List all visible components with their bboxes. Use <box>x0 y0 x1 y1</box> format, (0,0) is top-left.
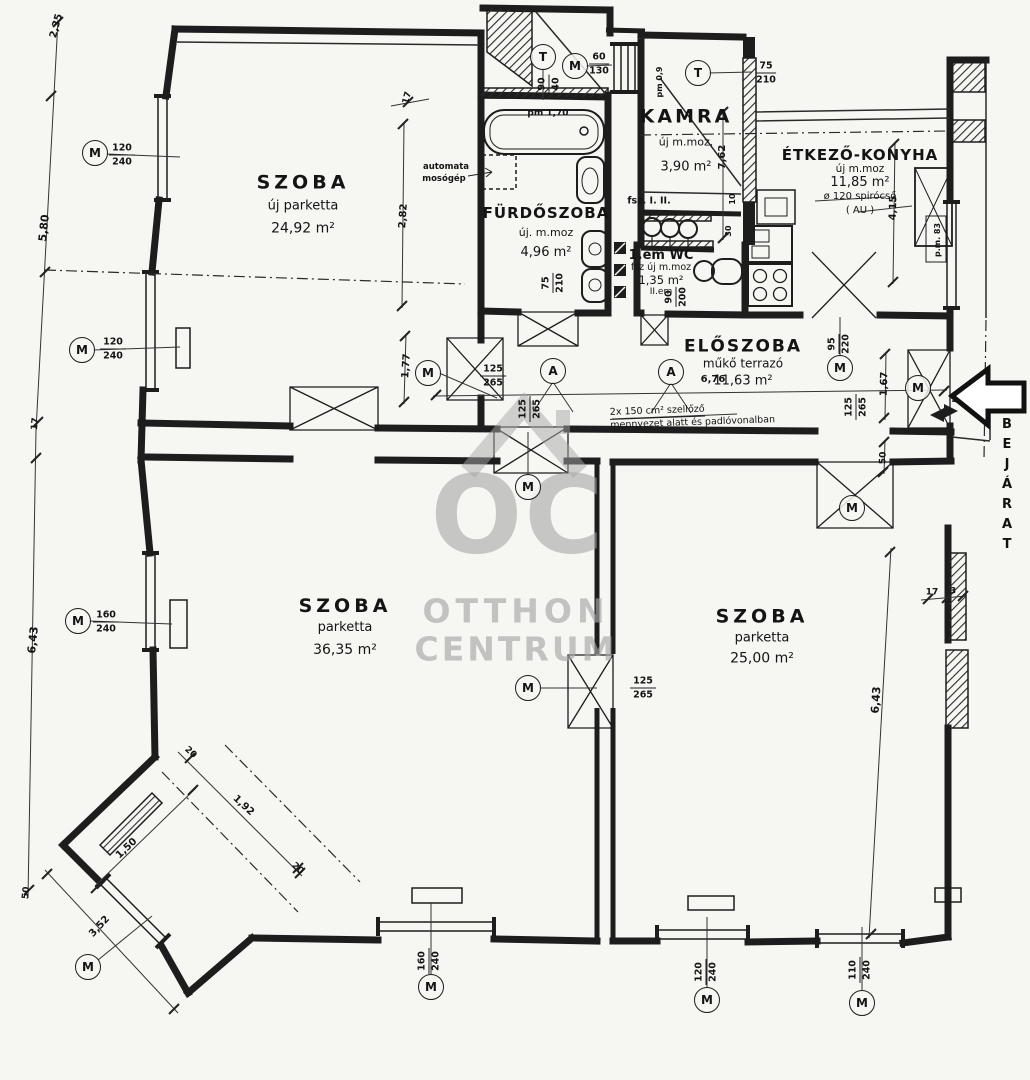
dimension-label: 50 <box>879 452 888 465</box>
dimension-label: mosógép <box>422 175 466 184</box>
room-name: SZOBA <box>716 607 809 628</box>
fraction-denominator: 130 <box>589 65 609 77</box>
room-label: SZOBAparketta25,00 m² <box>716 607 809 670</box>
room-detail: parketta <box>716 628 809 649</box>
dimension-fraction: 120240 <box>109 143 135 168</box>
dimension-fraction: 125265 <box>844 394 869 420</box>
stove <box>748 264 792 306</box>
symbol-A: A <box>658 359 684 385</box>
fraction-denominator: 240 <box>861 960 873 980</box>
fraction-denominator: 240 <box>707 962 719 982</box>
dimension-fraction: 110240 <box>848 957 873 983</box>
room-detail: 11,85 m² <box>782 176 938 190</box>
dimension-fraction: 125265 <box>518 396 543 422</box>
fraction-numerator: 90 <box>537 74 550 93</box>
room-detail: új. m.moz <box>483 223 610 243</box>
symbol-M: M <box>82 140 108 166</box>
fraction-denominator: 240 <box>96 623 116 635</box>
dimension-label: 1,77 <box>401 353 413 378</box>
room-label: FÜRDŐSZOBAúj. m.moz4,96 m² <box>483 203 610 263</box>
symbol-A: A <box>540 358 566 384</box>
room-name: KAMRA <box>640 105 733 130</box>
fraction-numerator: 75 <box>541 273 554 292</box>
watermark-line1: OTTHON <box>422 592 609 631</box>
fraction-denominator: 200 <box>677 287 689 307</box>
dimension-label: 3 <box>950 588 956 597</box>
dimension-fraction: 120240 <box>100 337 126 362</box>
dimension-fraction: 75210 <box>756 61 776 86</box>
symbol-M: M <box>905 375 931 401</box>
symbol-M: M <box>418 974 444 1000</box>
dimension-label: 6,76 <box>701 375 726 385</box>
symbol-M: M <box>515 675 541 701</box>
fraction-numerator: 120 <box>100 337 126 350</box>
fraction-denominator: 265 <box>483 377 503 389</box>
dimension-fraction: 125265 <box>480 364 506 389</box>
dimension-label: pm 0,9 <box>656 66 664 97</box>
dimension-fraction: 9040 <box>537 74 562 93</box>
fraction-numerator: 120 <box>109 143 135 156</box>
fraction-numerator: 125 <box>630 676 656 689</box>
room-name: SZOBA <box>257 172 350 195</box>
fraction-numerator: 60 <box>589 52 608 65</box>
symbol-M: M <box>65 608 91 634</box>
room-label: SZOBAúj parketta24,92 m² <box>257 172 350 241</box>
fraction-denominator: 240 <box>430 951 442 971</box>
room-detail: új m.moz <box>782 162 938 176</box>
room-name: FÜRDŐSZOBA <box>483 203 610 223</box>
radiator <box>176 328 190 368</box>
dimension-label: 7,62 <box>718 145 728 170</box>
fraction-numerator: 110 <box>848 957 861 983</box>
fraction-numerator: 75 <box>756 61 775 74</box>
fraction-numerator: 95 <box>827 334 840 353</box>
room-detail: parketta <box>299 617 392 639</box>
symbol-M: M <box>75 954 101 980</box>
dimension-label: 17 <box>31 417 41 430</box>
room-name: ELŐSZOBA <box>684 339 802 356</box>
dimension-label: 30 <box>725 225 733 236</box>
room-detail: 1,35 m² <box>629 274 694 286</box>
fraction-numerator: 125 <box>844 394 857 420</box>
fraction-denominator: 265 <box>633 689 653 701</box>
fraction-numerator: 125 <box>480 364 506 377</box>
fraction-denominator: 265 <box>857 397 869 417</box>
room-detail: ( AU ) <box>782 204 938 218</box>
dimension-label: 1,67 <box>880 371 891 396</box>
dimension-label: 17 <box>926 589 939 598</box>
room-label: ÉTKEZŐ-KONYHAúj m.moz11,85 m²ø 120 spiró… <box>782 148 938 218</box>
dimension-label: 6,43 <box>870 686 883 714</box>
fraction-denominator: 40 <box>550 77 562 90</box>
dimension-label: 50 <box>22 886 32 899</box>
dimension-label: 2,82 <box>398 203 410 228</box>
fraction-numerator: 120 <box>694 959 707 985</box>
room-detail: ø 120 spirócső <box>782 190 938 204</box>
dimension-fraction: 120240 <box>694 959 719 985</box>
dimension-label: 5,80 <box>37 214 51 242</box>
fraction-denominator: 210 <box>554 273 566 293</box>
dimension-label: p.m. 83 <box>934 223 942 257</box>
fraction-denominator: 240 <box>103 350 123 362</box>
room-name: 1.em WC <box>629 250 694 262</box>
room-label: SZOBAparketta36,35 m² <box>299 595 392 661</box>
dimension-fraction: 160240 <box>93 610 119 635</box>
fraction-numerator: 160 <box>93 610 119 623</box>
symbol-T: T <box>530 44 556 70</box>
symbol-M: M <box>849 990 875 1016</box>
dimension-label: fsz. I. II. <box>627 196 670 206</box>
washbasin <box>577 157 604 203</box>
symbol-M: M <box>515 474 541 500</box>
fraction-denominator: 210 <box>756 74 776 86</box>
dimension-label: 6,43 <box>26 626 40 654</box>
symbol-T: T <box>685 60 711 86</box>
room-detail: új parketta <box>257 195 350 218</box>
room-detail: 36,35 m² <box>299 639 392 661</box>
entrance-label: BEJÁRAT <box>1000 417 1015 557</box>
room-detail: 4,96 m² <box>483 243 610 263</box>
dimension-fraction: 95220 <box>827 334 852 354</box>
fraction-denominator: 240 <box>112 156 132 168</box>
room-detail: műkő terrazó <box>684 356 802 373</box>
floorplan-page: OC OTTHON CENTRUM BEJÁRAT 2x 150 cm² sze… <box>0 0 1030 1080</box>
watermark-monogram: OC <box>430 454 605 579</box>
fraction-numerator: 125 <box>518 396 531 422</box>
dimension-label: 4,15 <box>889 195 900 220</box>
dimension-fraction: 60130 <box>589 52 609 77</box>
symbol-M: M <box>562 53 588 79</box>
fraction-denominator: 265 <box>531 399 543 419</box>
dimension-label: 10 <box>729 193 737 204</box>
dimension-label: pm 1,70 <box>527 110 568 119</box>
fraction-numerator: 90 <box>664 287 677 306</box>
watermark-line2: CENTRUM <box>415 630 618 669</box>
dimension-fraction: 90200 <box>664 287 689 307</box>
dimension-fraction: 75210 <box>541 273 566 293</box>
room-name: ÉTKEZŐ-KONYHA <box>782 148 938 162</box>
symbol-M: M <box>69 337 95 363</box>
room-name: SZOBA <box>299 595 392 617</box>
fraction-numerator: 160 <box>417 948 430 974</box>
room-detail: 24,92 m² <box>257 218 350 241</box>
dimension-fraction: 125265 <box>630 676 656 701</box>
symbol-M: M <box>415 360 441 386</box>
symbol-M: M <box>694 987 720 1013</box>
fraction-denominator: 220 <box>840 334 852 354</box>
dimension-fraction: 160240 <box>417 948 442 974</box>
symbol-M: M <box>839 495 865 521</box>
room-detail: 25,00 m² <box>716 649 809 670</box>
symbol-M: M <box>827 355 853 381</box>
dimension-label: automata <box>423 163 469 172</box>
washing-machine <box>482 155 516 189</box>
